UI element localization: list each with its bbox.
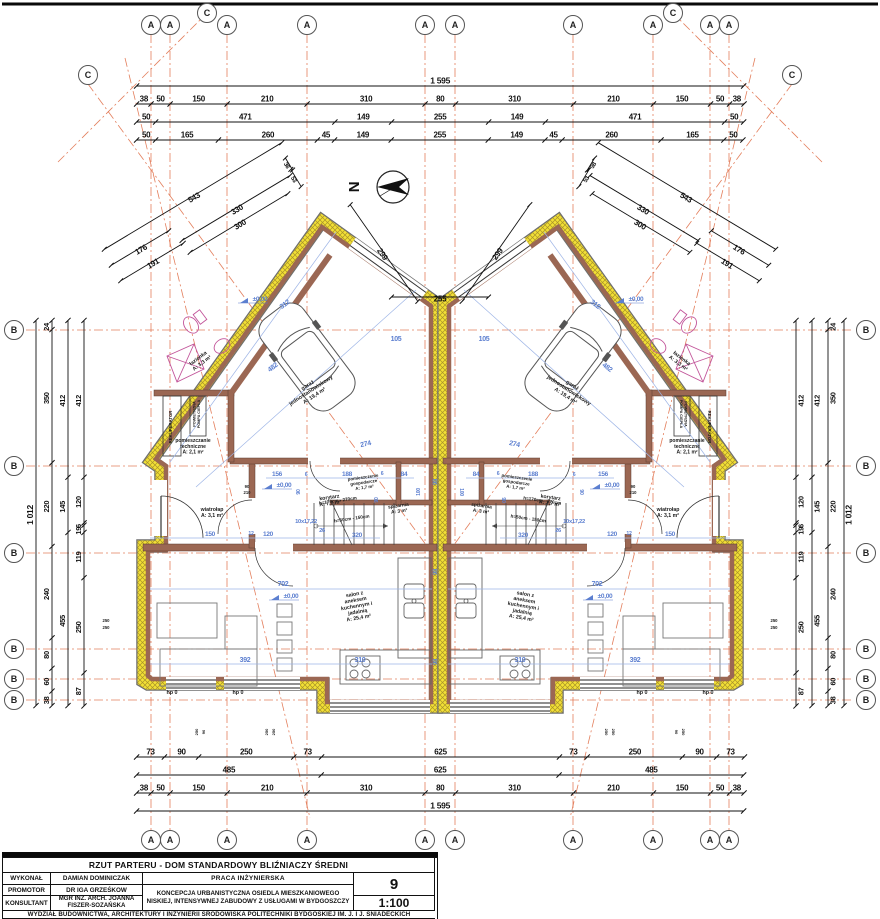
dim-label: 250 <box>629 748 642 757</box>
dim-label: 38 <box>733 784 742 793</box>
dim-label: A <box>167 20 174 30</box>
dim-label: 50 <box>142 113 151 122</box>
plan-label: hp 0 <box>166 690 177 696</box>
dim-label: 80 <box>42 651 51 659</box>
dim-label: 45 <box>322 131 331 140</box>
dim-label: 73 <box>146 748 155 757</box>
dim-label: 210 <box>261 784 274 793</box>
dim-label: 1 595 <box>430 76 450 86</box>
floor-plan-svg: 1 59538501502103108031021015050385047114… <box>0 0 880 919</box>
plan-label: 310 <box>515 657 526 664</box>
dim-label: ±0,00 <box>605 482 620 489</box>
dim-label: A <box>570 835 577 845</box>
plan-label: REKUPERATOR <box>168 410 173 444</box>
project-description: KONCEPCJA URBANISTYCZNA OSIEDLA MIESZKAN… <box>143 885 354 911</box>
plan-label: 90 <box>296 489 302 495</box>
dim-label: 50 <box>716 95 725 104</box>
plan-label: 84 <box>401 471 408 478</box>
dim-label: 80 <box>829 651 838 659</box>
dim-label: 19 <box>74 527 83 535</box>
dim-label: 38 <box>140 95 149 104</box>
dim-label: 310 <box>508 95 521 104</box>
dim-label: 73 <box>569 748 578 757</box>
dim-label: 255 <box>434 131 447 140</box>
dim-label: 50 <box>142 131 151 140</box>
dim-label: A <box>452 835 459 845</box>
dim-label: A <box>570 20 577 30</box>
plan-label: 105 <box>391 336 402 343</box>
dim-label: 310 <box>360 784 373 793</box>
dim-label: 250 <box>74 621 83 633</box>
plan-label: 250 <box>103 625 111 630</box>
plan-label: 188 <box>528 471 539 478</box>
dim-label: 150 <box>192 784 205 793</box>
plan-label: 90 <box>500 497 506 503</box>
dim-label: A <box>304 835 311 845</box>
dim-label: A <box>148 835 155 845</box>
dim-label: ±0,00 <box>253 296 268 303</box>
dim-label: 145 <box>813 501 822 513</box>
dim-label: 1 012 <box>25 505 35 525</box>
dim-label: A <box>650 835 657 845</box>
praca-inzynierska: PRACA INŻYNIERSKA <box>143 873 354 885</box>
dim-label: A <box>422 20 429 30</box>
dim-label: 255 <box>434 295 447 304</box>
dim-label: 50 <box>716 784 725 793</box>
plan-label: 6 <box>497 471 500 477</box>
dim-label: 350 <box>42 392 51 404</box>
dim-label: ±0,00 <box>598 593 613 600</box>
north-letter: N <box>346 182 363 193</box>
dim-label: 1 595 <box>430 801 450 811</box>
dim-label: 149 <box>510 131 523 140</box>
dim-label: 150 <box>676 784 689 793</box>
dim-label: A <box>726 20 733 30</box>
dim-label: 120 <box>797 496 806 508</box>
drawing-sheet: 1 59538501502103108031021015050385047114… <box>0 0 880 919</box>
plan-label: 100 <box>458 488 464 496</box>
plan-label: 210 <box>630 490 638 495</box>
dim-label: 50 <box>156 95 165 104</box>
dim-label: 50 <box>156 784 165 793</box>
plan-label: 105 <box>479 336 490 343</box>
dim-label: 310 <box>360 95 373 104</box>
dim-label: 485 <box>645 766 658 775</box>
dim-label: 255 <box>434 113 447 122</box>
plan-label: 120 <box>263 531 274 538</box>
dim-label: 210 <box>607 95 620 104</box>
plan-label: 84 <box>473 471 480 478</box>
dim-label: A <box>148 20 155 30</box>
plan-label: 310 <box>355 657 366 664</box>
dim-label: 149 <box>357 131 370 140</box>
dim-label: A <box>726 835 733 845</box>
dim-label: 165 <box>181 131 194 140</box>
dim-label: 73 <box>304 748 313 757</box>
plan-label: 156 <box>272 471 283 478</box>
dim-label: B <box>11 325 18 335</box>
plan-label: 250 <box>611 729 616 736</box>
dim-label: 260 <box>262 131 275 140</box>
dim-label: 210 <box>261 95 274 104</box>
dim-label: 220 <box>42 501 51 513</box>
dim-label: 145 <box>58 501 67 513</box>
plan-label: 120 <box>607 531 618 538</box>
plan-label: 392 <box>630 657 641 664</box>
plan-label: 250 <box>194 728 199 735</box>
value-wykonal: DAMIAN DOMINICZAK <box>51 873 143 885</box>
dim-label: 45 <box>549 131 558 140</box>
dim-label: A <box>304 20 311 30</box>
plan-label: 320 <box>518 532 529 539</box>
dim-label: B <box>11 674 18 684</box>
plan-label: 250 <box>103 618 111 623</box>
dim-label: 50 <box>730 113 739 122</box>
dim-label: 250 <box>797 621 806 633</box>
plan-label: 6 <box>573 472 576 478</box>
dim-label: 38 <box>733 95 742 104</box>
plan-label: 90 <box>374 497 380 503</box>
dim-label: 240 <box>42 588 51 600</box>
dim-label: A <box>224 835 231 845</box>
dim-label: 60 <box>829 678 838 686</box>
dim-label: 50 <box>729 131 738 140</box>
plan-label: 702 <box>592 581 603 588</box>
plan-label: 90 <box>578 489 584 495</box>
dim-label: 485 <box>223 766 236 775</box>
dim-label: 625 <box>434 748 447 757</box>
label-konsultant: KONSULTANT <box>3 896 51 911</box>
dim-label: 119 <box>797 551 806 562</box>
plan-label: 320 <box>352 532 363 539</box>
drawing-scale: 1:100 <box>354 896 435 911</box>
faculty-footer: WYDZIAŁ BUDOWNICTWA, ARCHITEKTURY I INŻY… <box>3 911 435 919</box>
dim-label: C <box>85 70 92 80</box>
plan-label: 250 <box>264 728 269 735</box>
dim-label: 310 <box>508 784 521 793</box>
dim-label: B <box>863 325 870 335</box>
dim-label: A <box>650 20 657 30</box>
dim-label: 19 <box>797 527 806 535</box>
plan-label: 250 <box>771 625 779 630</box>
dim-label: 455 <box>813 615 822 627</box>
dim-label: 80 <box>436 95 445 104</box>
plan-label: 90 <box>674 730 679 735</box>
dim-label: 1 012 <box>844 505 854 525</box>
dim-label: B <box>11 695 18 705</box>
dim-label: 260 <box>605 131 618 140</box>
label-promotor: PROMOTOR <box>3 885 51 896</box>
dim-label: B <box>11 548 18 558</box>
plan-label: hp 0 <box>636 690 647 696</box>
plan-label: 12 <box>248 531 254 537</box>
plan-label: 90 <box>631 484 636 489</box>
dim-label: ±0,00 <box>277 482 292 489</box>
dim-label: 90 <box>177 748 186 757</box>
plan-label: 90 <box>201 729 206 734</box>
dim-label: 412 <box>813 395 822 407</box>
dim-label: 38 <box>140 784 149 793</box>
dim-label: A <box>422 835 429 845</box>
dim-label: 471 <box>629 113 642 122</box>
dim-label: 80 <box>436 784 445 793</box>
plan-label: 6 <box>305 472 308 478</box>
dim-label: 412 <box>74 395 83 407</box>
plan-label: 250 <box>681 729 686 736</box>
plan-label: 12 <box>626 531 632 537</box>
plan-label: 10x17,22 <box>295 519 317 525</box>
dim-label: 38 <box>829 696 838 704</box>
dim-label: 73 <box>726 748 735 757</box>
dim-label: 220 <box>829 501 838 513</box>
label-wykonal: WYKONAŁ <box>3 873 51 885</box>
dim-label: 149 <box>357 113 370 122</box>
dim-label: A <box>224 20 231 30</box>
plan-label: 10x17,22 <box>563 519 585 525</box>
dim-label: 38 <box>42 696 51 704</box>
plan-label: 250 <box>604 729 609 736</box>
sheet-number: 9 <box>354 873 435 896</box>
dim-label: B <box>11 461 18 471</box>
dim-label: A <box>452 20 459 30</box>
dim-label: 87 <box>74 687 83 695</box>
plan-label: 100 <box>416 488 422 496</box>
plan-label: 188 <box>342 471 353 478</box>
dim-label: 350 <box>829 392 838 404</box>
plan-label: 98 <box>433 568 439 575</box>
dim-label: 455 <box>58 615 67 627</box>
dim-label: ±0,00 <box>629 296 644 303</box>
plan-label: 702 <box>278 581 289 588</box>
plan-label: 150 <box>205 531 216 538</box>
dim-label: 240 <box>829 588 838 600</box>
dim-label: 210 <box>607 784 620 793</box>
dim-label: 87 <box>797 687 806 695</box>
plan-label: wiatrołapA: 3,1 m² <box>656 507 680 519</box>
value-promotor: DR IGA GRZEŚKOW <box>51 885 143 896</box>
dim-label: C <box>670 8 677 18</box>
dim-label: 24 <box>42 322 51 331</box>
titleblock: RZUT PARTERU - DOM STANDARDOWY BLIŹNIACZ… <box>2 857 438 919</box>
plan-label: 98 <box>433 658 439 665</box>
dim-label: A <box>167 835 174 845</box>
drawing-title: RZUT PARTERU - DOM STANDARDOWY BLIŹNIACZ… <box>3 858 435 873</box>
plan-label: 156 <box>598 471 609 478</box>
plan-label: 250 <box>271 728 276 735</box>
plan-label: 250 <box>771 618 779 623</box>
dim-label: 165 <box>686 131 699 140</box>
plan-label: 210 <box>244 490 252 495</box>
dim-label: B <box>863 674 870 684</box>
dim-label: 150 <box>676 95 689 104</box>
dim-label: B <box>863 644 870 654</box>
dim-label: B <box>863 461 870 471</box>
dim-label: B <box>11 644 18 654</box>
dim-label: 149 <box>511 113 524 122</box>
dim-label: 60 <box>42 678 51 686</box>
plan-label: hp 0 <box>702 690 713 696</box>
dim-label: 150 <box>192 95 205 104</box>
plan-label: 98 <box>433 478 439 485</box>
dim-label: ±0,00 <box>284 593 299 600</box>
plan-label: hp 0 <box>232 690 243 696</box>
plan-label: 150 <box>665 531 676 538</box>
dim-label: 412 <box>797 395 806 407</box>
dim-label: 120 <box>74 496 83 508</box>
dim-label: 119 <box>74 551 83 562</box>
plan-label: 6 <box>381 471 384 477</box>
dim-label: 90 <box>695 748 704 757</box>
plan-label: wiatrołapA: 3,1 m² <box>200 507 224 519</box>
dim-label: 412 <box>58 395 67 407</box>
dim-label: B <box>863 695 870 705</box>
dim-label: C <box>204 8 211 18</box>
plan-label: POWIETRZNAPOMPA CIEPŁA <box>679 400 687 429</box>
dim-label: 625 <box>434 766 447 775</box>
plan-label: 90 <box>245 484 250 489</box>
dim-label: 250 <box>240 748 253 757</box>
plan-label: REKUPERATOR <box>707 411 712 445</box>
dim-label: A <box>707 20 714 30</box>
value-konsultant: MGR INŻ. ARCH. JOANNA FISZER-SOZAŃSKA <box>51 896 143 911</box>
dim-label: A <box>707 835 714 845</box>
dim-label: C <box>789 70 796 80</box>
plan-label: 392 <box>240 657 251 664</box>
dim-label: B <box>863 548 870 558</box>
dim-label: 24 <box>829 322 838 331</box>
plan-label: POWIETRZNAPOMPA CIEPŁA <box>193 400 201 429</box>
dim-label: 471 <box>239 113 252 122</box>
